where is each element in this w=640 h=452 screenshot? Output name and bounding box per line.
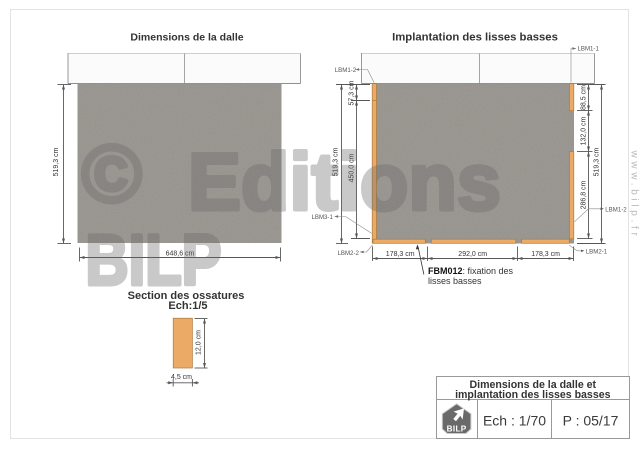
svg-text:Dimensions de la dalle: Dimensions de la dalle	[130, 32, 243, 44]
svg-text:12,0 cm: 12,0 cm	[196, 330, 203, 355]
svg-text:286,8 cm: 286,8 cm	[581, 180, 588, 209]
svg-text:132,0 cm: 132,0 cm	[581, 116, 588, 145]
svg-text:57,3 cm: 57,3 cm	[348, 80, 355, 105]
svg-text:LBM2-2: LBM2-2	[338, 250, 360, 257]
svg-text:LBM1-1: LBM1-1	[578, 46, 600, 53]
svg-text:Editions: Editions	[188, 138, 501, 228]
svg-text:519,3 cm: 519,3 cm	[53, 147, 60, 176]
svg-text:P : 05/17: P : 05/17	[563, 413, 619, 429]
svg-text:178,3 cm: 178,3 cm	[531, 251, 560, 258]
svg-text:BILP: BILP	[447, 424, 467, 433]
svg-text:implantation des lisses basses: implantation des lisses basses	[455, 389, 611, 401]
svg-text:88,5 cm: 88,5 cm	[581, 85, 588, 110]
svg-text:519,3 cm: 519,3 cm	[593, 147, 600, 176]
svg-text:Implantation des lisses basses: Implantation des lisses basses	[392, 32, 558, 44]
svg-text:Ech:1/5: Ech:1/5	[168, 300, 207, 312]
svg-text:292,0 cm: 292,0 cm	[458, 251, 487, 258]
svg-text:LBM2-1: LBM2-1	[586, 249, 608, 256]
svg-text:4,5 cm: 4,5 cm	[171, 374, 192, 381]
svg-text:178,3 cm: 178,3 cm	[386, 251, 415, 258]
svg-text:LBM1-2: LBM1-2	[605, 207, 627, 214]
svg-text:lisses basses: lisses basses	[428, 276, 482, 286]
svg-text:LBM1-2: LBM1-2	[335, 67, 357, 74]
svg-text:FBM012: fixation des: FBM012: fixation des	[428, 266, 514, 276]
svg-text:BILP: BILP	[86, 222, 222, 301]
svg-text:www.bilp.fr: www.bilp.fr	[629, 150, 640, 240]
svg-text:Ech : 1/70: Ech : 1/70	[483, 413, 546, 429]
svg-text:©: ©	[82, 129, 142, 220]
